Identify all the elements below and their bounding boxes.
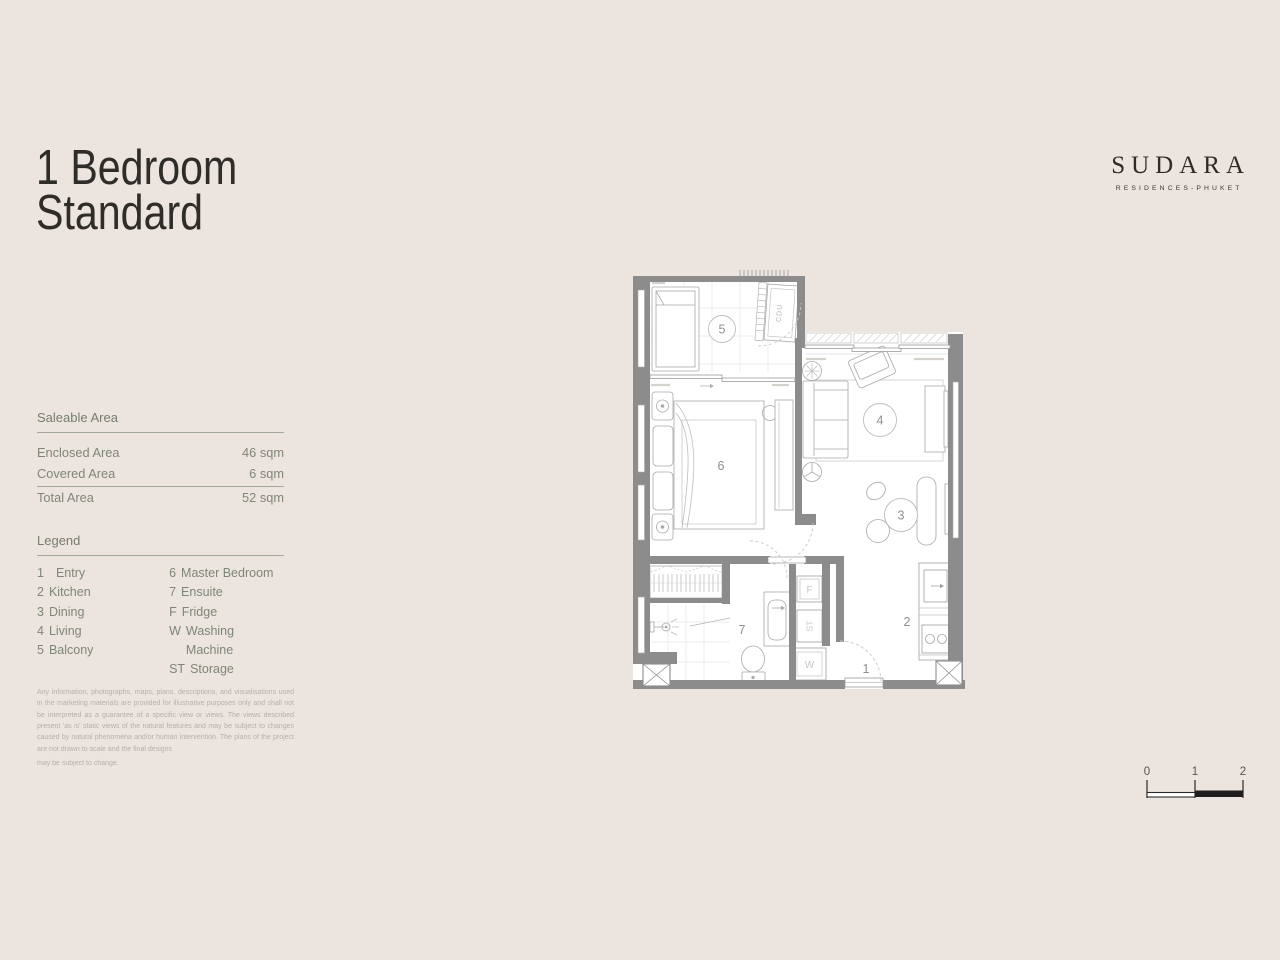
area-value: 46 sqm <box>242 442 284 463</box>
brochure-page: 1 Bedroom Standard SUDARA RESIDENCES-PHU… <box>0 0 1280 960</box>
entry-label: 1 <box>863 662 870 676</box>
dining-label: 3 <box>898 509 905 523</box>
title-line2: Standard <box>36 191 237 236</box>
legend-item: 6Master Bedroom <box>169 564 284 583</box>
scale-1: 1 <box>1192 766 1198 778</box>
legend-item: WWashing Machine <box>169 622 284 661</box>
scale-2: 2 <box>1240 766 1246 778</box>
area-label: Total Area <box>37 487 94 508</box>
cdu-label: CDU <box>776 304 784 323</box>
legend-item: 4Living <box>37 622 169 641</box>
brand-tagline: RESIDENCES-PHUKET <box>1111 185 1247 192</box>
legend-item: 7Ensuite <box>169 583 284 602</box>
saleable-area-section: Saleable Area Enclosed Area 46 sqm Cover… <box>37 410 284 508</box>
title-line1: 1 Bedroom <box>36 146 237 191</box>
cdu-unit: CDU <box>755 282 799 343</box>
kitchen-counter <box>919 563 951 660</box>
area-label: Covered Area <box>37 463 115 484</box>
living-label: 4 <box>877 414 884 428</box>
master-bedroom-label: 6 <box>718 459 725 473</box>
storage-label: ST <box>805 621 815 632</box>
scale-0: 0 <box>1144 766 1150 778</box>
washing-machine-label: W <box>805 660 815 671</box>
entry-threshold <box>845 678 883 687</box>
area-row-enclosed: Enclosed Area 46 sqm <box>37 442 284 463</box>
door-lintel <box>768 557 806 563</box>
floor-plan: CDU <box>612 258 988 704</box>
ensuite-label: 7 <box>739 623 746 637</box>
brand-logo: SUDARA RESIDENCES-PHUKET <box>1111 152 1244 192</box>
legend-item: 3Dining <box>37 603 169 622</box>
fridge-label: F <box>806 585 812 596</box>
legend-item: FFridge <box>169 603 284 622</box>
area-value: 6 sqm <box>249 463 284 484</box>
brand-name: SUDARA <box>1111 152 1250 180</box>
legend-section: Legend 1Entry 2Kitchen 3Dining 4Living 5… <box>37 533 284 680</box>
area-row-total: Total Area 52 sqm <box>37 486 284 508</box>
wardrobe <box>650 566 722 598</box>
saleable-area-rows: Enclosed Area 46 sqm Covered Area 6 sqm … <box>37 442 284 508</box>
scale-bar: 0 1 2 <box>1138 763 1250 805</box>
saleable-area-heading: Saleable Area <box>37 410 284 433</box>
balcony-daybed <box>652 287 699 371</box>
legend-item: STStorage <box>169 660 284 679</box>
disclaimer-text: Any information, photographs, maps, plan… <box>37 687 294 769</box>
legend-heading: Legend <box>37 533 284 556</box>
legend-column-2: 6Master Bedroom 7Ensuite FFridge WWashin… <box>169 564 284 680</box>
area-value: 52 sqm <box>242 487 284 508</box>
legend-item: 5Balcony <box>37 641 169 660</box>
legend-item: 2Kitchen <box>37 583 169 602</box>
legend-item: 1Entry <box>37 564 169 583</box>
area-label: Enclosed Area <box>37 442 120 463</box>
balcony-label: 5 <box>719 323 726 337</box>
kitchen-label: 2 <box>904 615 911 629</box>
area-row-covered: Covered Area 6 sqm <box>37 463 284 484</box>
page-title: 1 Bedroom Standard <box>36 146 237 236</box>
living-window-band <box>805 333 950 352</box>
vent-grille <box>740 270 788 276</box>
legend-column-1: 1Entry 2Kitchen 3Dining 4Living 5Balcony <box>37 564 169 680</box>
